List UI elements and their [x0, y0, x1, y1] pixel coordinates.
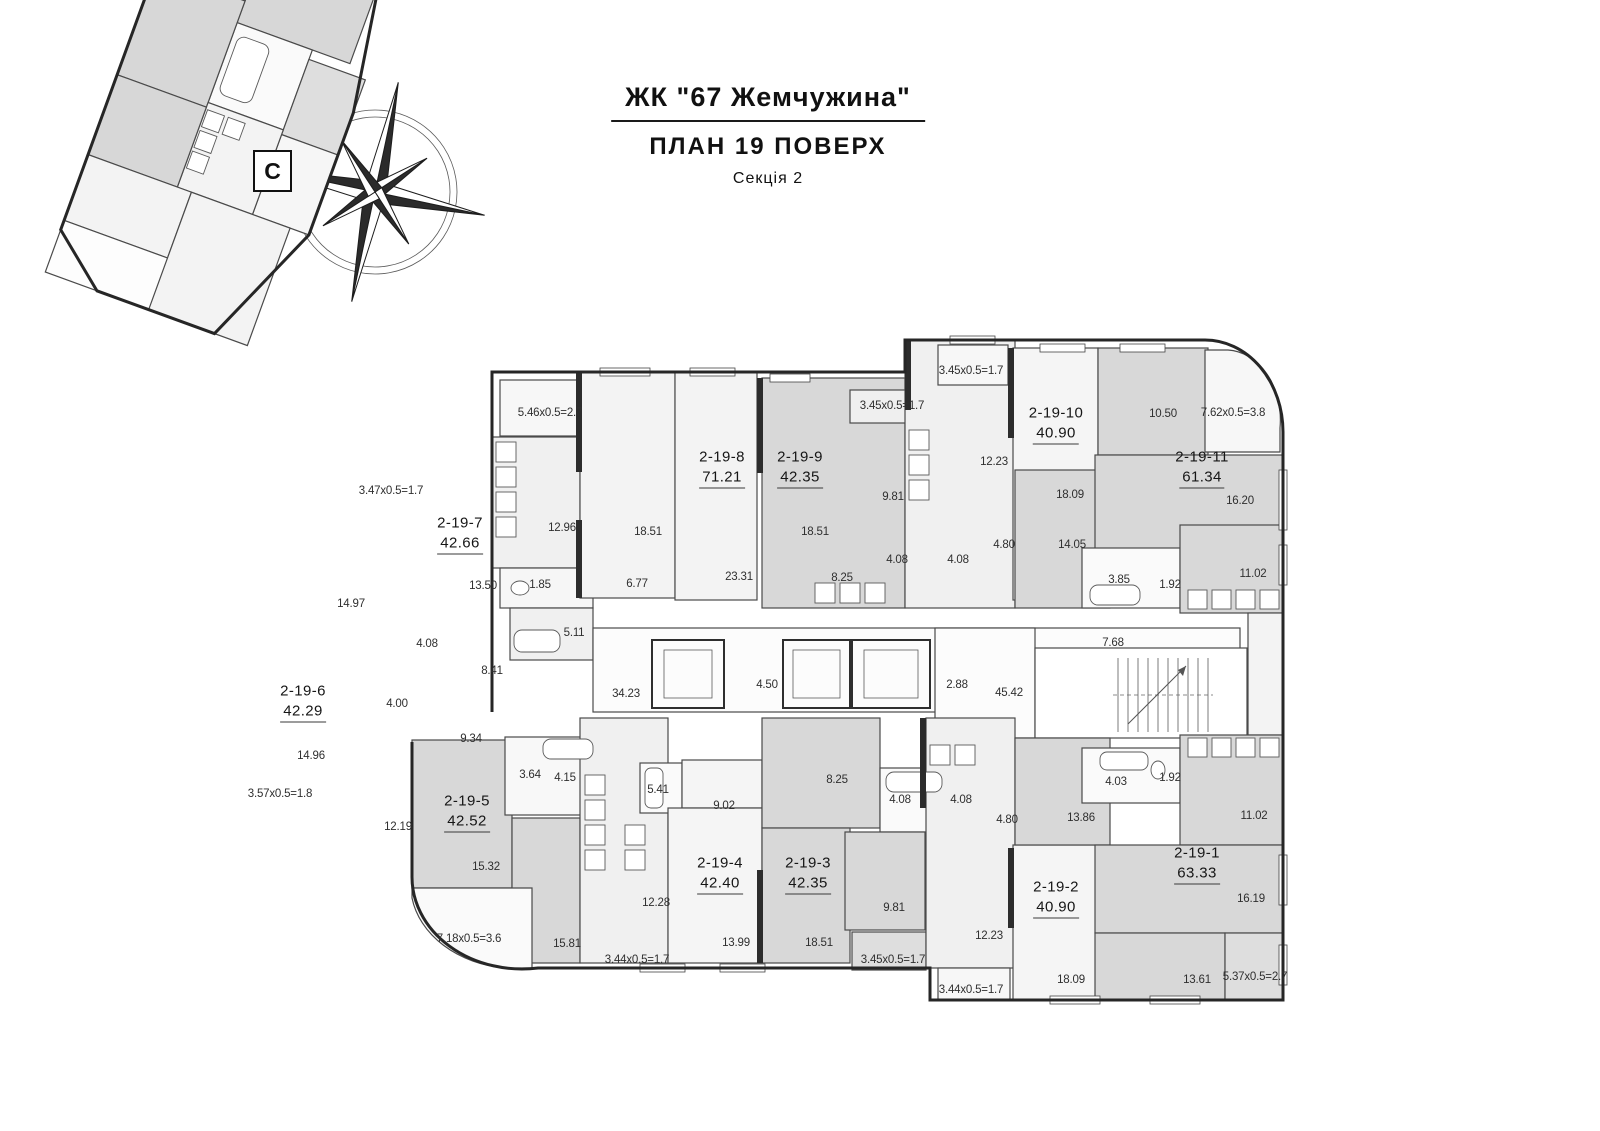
dim-label: 1.92 — [1159, 772, 1181, 784]
dim-label: 18.09 — [1057, 974, 1085, 986]
plan-title: ПЛАН 19 ПОВЕРХ — [611, 133, 925, 161]
room-1851-apt8 — [580, 372, 675, 598]
apartment-label-2-19-9: 2-19-942.35 — [777, 448, 823, 489]
dim-label: 4.08 — [886, 554, 908, 566]
room-1361-apt1 — [1095, 933, 1225, 1000]
dim-label: 18.09 — [1056, 489, 1084, 501]
dim-label: 3.47x0.5=1.7 — [359, 485, 423, 497]
dim-label: 5.41 — [647, 784, 669, 796]
dim-label: 4.80 — [993, 539, 1015, 551]
dim-label: 14.97 — [337, 598, 365, 610]
dim-label: 13.61 — [1183, 974, 1211, 986]
dim-label: 12.96 — [548, 522, 576, 534]
dim-label: 3.45x0.5=1.7 — [939, 365, 1003, 377]
apartment-label-2-19-7: 2-19-742.66 — [437, 514, 483, 555]
dim-label: 3.45x0.5=1.7 — [860, 400, 924, 412]
north-indicator: С — [253, 150, 292, 192]
room-balcony-762 — [1205, 350, 1280, 452]
dim-label: 11.02 — [1240, 568, 1267, 580]
dim-label: 4.08 — [416, 638, 438, 650]
dim-label: 3.57x0.5=1.8 — [248, 788, 312, 800]
dim-label: 13.86 — [1067, 812, 1095, 824]
room-1050 — [1098, 348, 1208, 455]
dim-label: 9.34 — [460, 733, 482, 745]
dim-label: 5.11 — [564, 627, 585, 639]
dim-label: 4.08 — [889, 794, 911, 806]
dim-label: 9.81 — [883, 902, 905, 914]
dim-label: 13.50 — [469, 580, 497, 592]
dim-label: 4.00 — [386, 698, 408, 710]
dim-label: 4.03 — [1105, 776, 1127, 788]
shaft-duct — [1248, 613, 1283, 735]
dim-label: 4.15 — [554, 772, 576, 784]
dim-label: 4.08 — [950, 794, 972, 806]
apartment-label-2-19-4: 2-19-442.40 — [697, 854, 743, 895]
apartment-label-2-19-2: 2-19-240.90 — [1033, 878, 1079, 919]
dim-label: 8.25 — [826, 774, 848, 786]
dim-label: 8.41 — [481, 665, 503, 677]
dim-label: 7.68 — [1102, 637, 1124, 649]
dim-label: 5.37x0.5=2.7 — [1223, 971, 1287, 983]
dim-label: 16.19 — [1237, 893, 1265, 905]
room-981 — [845, 832, 925, 930]
apartment-label-2-19-6: 2-19-642.29 — [280, 682, 326, 723]
dim-label: 1.92 — [1159, 579, 1181, 591]
dim-label: 9.02 — [713, 800, 735, 812]
dim-label: 18.51 — [801, 526, 829, 538]
section-label: Секція 2 — [611, 170, 925, 188]
dim-label: 12.19 — [384, 821, 412, 833]
dim-label: 7.18x0.5=3.6 — [437, 933, 501, 945]
floor-plan-page: ЖК "67 Жемчужина" ПЛАН 19 ПОВЕРХ Секція … — [0, 0, 1600, 1131]
dim-label: 16.20 — [1226, 495, 1254, 507]
dim-label: 3.44x0.5=1.7 — [939, 984, 1003, 996]
dim-label: 3.44x0.5=1.7 — [605, 954, 669, 966]
dim-label: 9.81 — [882, 491, 904, 503]
dim-label: 3.45x0.5=1.7 — [861, 954, 925, 966]
dim-label: 18.51 — [634, 526, 662, 538]
dim-label: 14.05 — [1058, 539, 1086, 551]
title-block: ЖК "67 Жемчужина" ПЛАН 19 ПОВЕРХ Секція … — [611, 82, 925, 188]
dim-label: 4.50 — [756, 679, 778, 691]
dim-label: 4.80 — [996, 814, 1018, 826]
apartment-label-2-19-1: 2-19-163.33 — [1174, 844, 1220, 885]
dim-label: 4.08 — [947, 554, 969, 566]
left-wing — [45, 0, 398, 352]
complex-name: ЖК "67 Жемчужина" — [611, 82, 925, 122]
room-balcony-537 — [1225, 933, 1283, 1000]
dim-label: 12.23 — [975, 930, 1003, 942]
dim-label: 23.31 — [725, 571, 753, 583]
dim-label: 12.23 — [980, 456, 1008, 468]
dim-label: 45.42 — [995, 687, 1023, 699]
dim-label: 7.62x0.5=3.8 — [1201, 407, 1265, 419]
dim-label: 15.81 — [553, 938, 581, 950]
dim-label: 8.25 — [831, 572, 853, 584]
apartment-label-2-19-5: 2-19-542.52 — [444, 792, 490, 833]
dim-label: 2.88 — [946, 679, 968, 691]
dim-label: 14.96 — [297, 750, 325, 762]
dim-label: 5.46x0.5=2.7 — [518, 407, 582, 419]
room-kitchen-825-apt3 — [762, 718, 880, 828]
dim-label: 3.64 — [519, 769, 541, 781]
dim-label: 13.99 — [722, 937, 750, 949]
dim-label: 15.32 — [472, 861, 500, 873]
dim-label: 34.23 — [612, 688, 640, 700]
dim-label: 18.51 — [805, 937, 833, 949]
apartment-label-2-19-11: 2-19-1161.34 — [1175, 448, 1228, 489]
apartment-label-2-19-10: 2-19-1040.90 — [1029, 404, 1084, 445]
dim-label: 3.85 — [1108, 574, 1130, 586]
dim-label: 1.85 — [529, 579, 551, 591]
dim-label: 12.28 — [642, 897, 670, 909]
dim-label: 6.77 — [626, 578, 648, 590]
bottom-row-rooms — [412, 718, 1283, 1000]
dim-label: 10.50 — [1149, 408, 1177, 420]
stairwell — [1035, 648, 1247, 738]
apartment-label-2-19-3: 2-19-342.35 — [785, 854, 831, 895]
dim-label: 11.02 — [1241, 810, 1268, 822]
apartment-label-2-19-8: 2-19-871.21 — [699, 448, 745, 489]
